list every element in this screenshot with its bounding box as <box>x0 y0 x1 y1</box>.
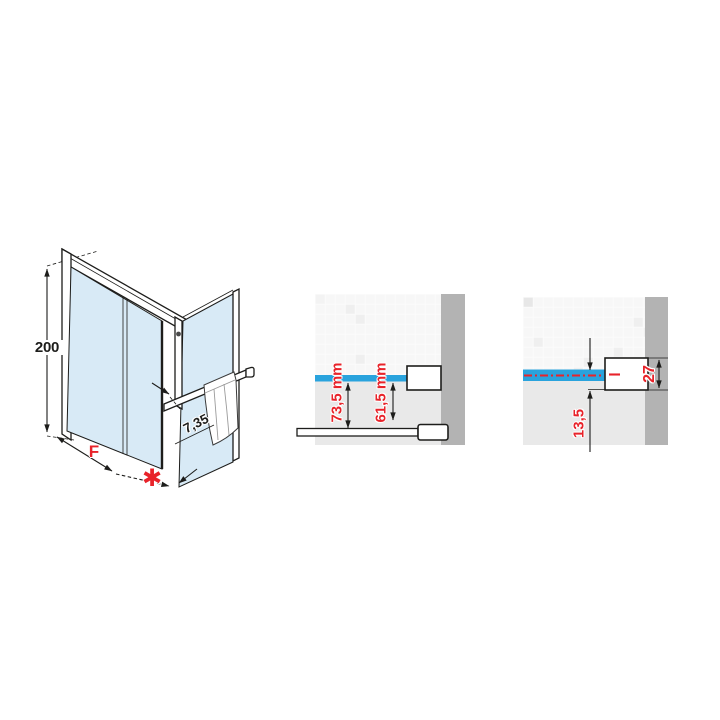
width-dimension-label: F <box>84 443 104 460</box>
offset-dimension-label: 13,5 <box>572 394 587 454</box>
profile-height-label: 27 <box>642 356 658 392</box>
inner-dimension-label: 61,5 mm <box>374 356 389 430</box>
towel-bar-bracket <box>246 367 254 377</box>
wall-profile-section <box>407 366 441 390</box>
gap-asterisk-label: ✱ <box>139 466 165 490</box>
height-dimension-label: 200 <box>28 340 66 355</box>
side-wall-band <box>441 294 465 445</box>
drawing-layer <box>0 0 720 720</box>
support-bar-endcap <box>418 425 448 441</box>
hinge-knob <box>176 332 181 337</box>
outer-dimension-label: 73,5 mm <box>330 356 345 430</box>
support-bar-section <box>297 429 418 437</box>
technical-drawing-canvas: 200 F ✱ 7,35 73,5 mm 61,5 mm 13,5 27 <box>0 0 720 720</box>
isometric-enclosure-drawing <box>47 249 254 487</box>
corner-post <box>175 317 182 409</box>
